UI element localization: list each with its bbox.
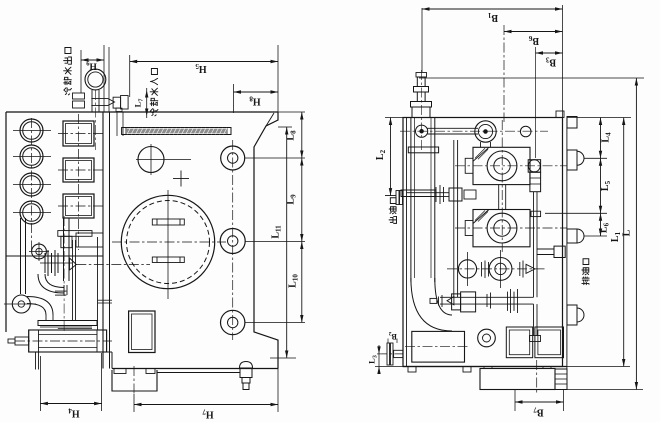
svg-text:L: L — [622, 229, 633, 236]
